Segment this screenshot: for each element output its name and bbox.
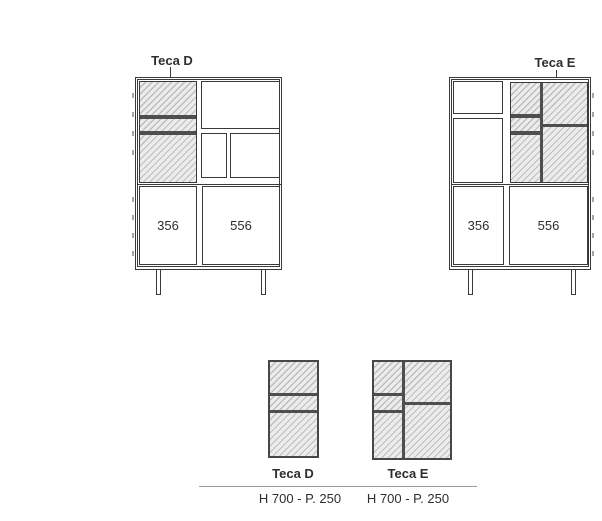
legend-teca-d-name: Teca D	[253, 467, 333, 481]
cabinet-d-hinge-mark	[132, 215, 134, 220]
cabinet-e-left-leg	[468, 270, 473, 295]
cabinet-d-hinge-mark	[132, 93, 134, 98]
cabinet-e-glass-shelf-left-1	[511, 114, 540, 118]
cabinet-d-door-356-value: 356	[140, 187, 196, 264]
cabinet-e-hinge-mark	[592, 131, 594, 136]
teca-d-detail-shelf-2	[270, 410, 317, 413]
cabinet-e-hinge-mark	[592, 150, 594, 155]
teca-d-callout-label: Teca D	[133, 54, 211, 68]
cabinet-d-open-compartment	[201, 133, 227, 178]
cabinet-e-hinge-mark	[592, 251, 594, 256]
cabinet-e-door-556-value: 556	[510, 187, 587, 264]
cabinet-d-hinge-mark	[132, 197, 134, 202]
teca-e-detail-vertical-divider	[402, 362, 405, 458]
cabinet-d-hinge-mark	[132, 131, 134, 136]
cabinet-e-shelf-line	[452, 184, 589, 185]
cabinet-d-door-556-value: 556	[203, 187, 279, 264]
cabinet-e-hinge-mark	[592, 197, 594, 202]
cabinet-d-door-356: 356	[139, 186, 197, 265]
teca-e-detail-front	[372, 360, 452, 460]
teca-e-detail-shelf-right	[405, 402, 450, 405]
cabinet-e-hinge-mark	[592, 112, 594, 117]
cabinet-e-glass-vertical-divider	[540, 83, 543, 182]
teca-d-detail-front	[268, 360, 319, 458]
cabinet-d-glass-door	[139, 81, 197, 183]
cabinet-d-hinge-mark	[132, 233, 134, 238]
cabinet-e-door-556: 556	[509, 186, 588, 265]
legend-teca-e-name: Teca E	[368, 467, 448, 481]
cabinet-d-right-leg	[261, 270, 266, 295]
cabinet-d-hinge-mark	[132, 112, 134, 117]
cabinet-e-hinge-mark	[592, 93, 594, 98]
teca-d-detail-shelf-1	[270, 393, 317, 396]
cabinet-e-right-leg	[571, 270, 576, 295]
cabinet-d-mid-door	[230, 133, 280, 178]
legend-divider-rule	[199, 486, 477, 487]
cabinet-e-glass-door	[510, 82, 588, 183]
cabinet-e-open-compartment-bottom	[453, 118, 503, 183]
cabinet-e-open-compartment-top	[453, 81, 503, 114]
cabinet-e-door-356: 356	[453, 186, 504, 265]
cabinet-e-glass-shelf-right	[543, 124, 587, 127]
teca-e-detail-shelf-left-2	[374, 410, 402, 413]
cabinet-d-shelf-line	[138, 184, 281, 185]
cabinet-e-glass-shelf-left-2	[511, 131, 540, 135]
teca-e-detail-shelf-left-1	[374, 393, 402, 396]
cabinet-e-door-356-value: 356	[454, 187, 503, 264]
cabinet-d-hinge-mark	[132, 251, 134, 256]
cabinet-d-glass-shelf-2	[140, 131, 196, 135]
cabinet-e-hinge-mark	[592, 233, 594, 238]
cabinet-d-door-556: 556	[202, 186, 280, 265]
teca-e-callout-label: Teca E	[516, 56, 594, 70]
furniture-technical-drawing: Teca D 356 556 Teca E	[0, 0, 602, 521]
legend-teca-e-dimensions: H 700 - P. 250	[366, 492, 450, 506]
cabinet-d-left-leg	[156, 270, 161, 295]
cabinet-d-flap-door	[201, 81, 280, 129]
legend-teca-d-dimensions: H 700 - P. 250	[258, 492, 342, 506]
cabinet-d-glass-shelf-1	[140, 115, 196, 119]
cabinet-d-hinge-mark	[132, 150, 134, 155]
cabinet-e-hinge-mark	[592, 215, 594, 220]
